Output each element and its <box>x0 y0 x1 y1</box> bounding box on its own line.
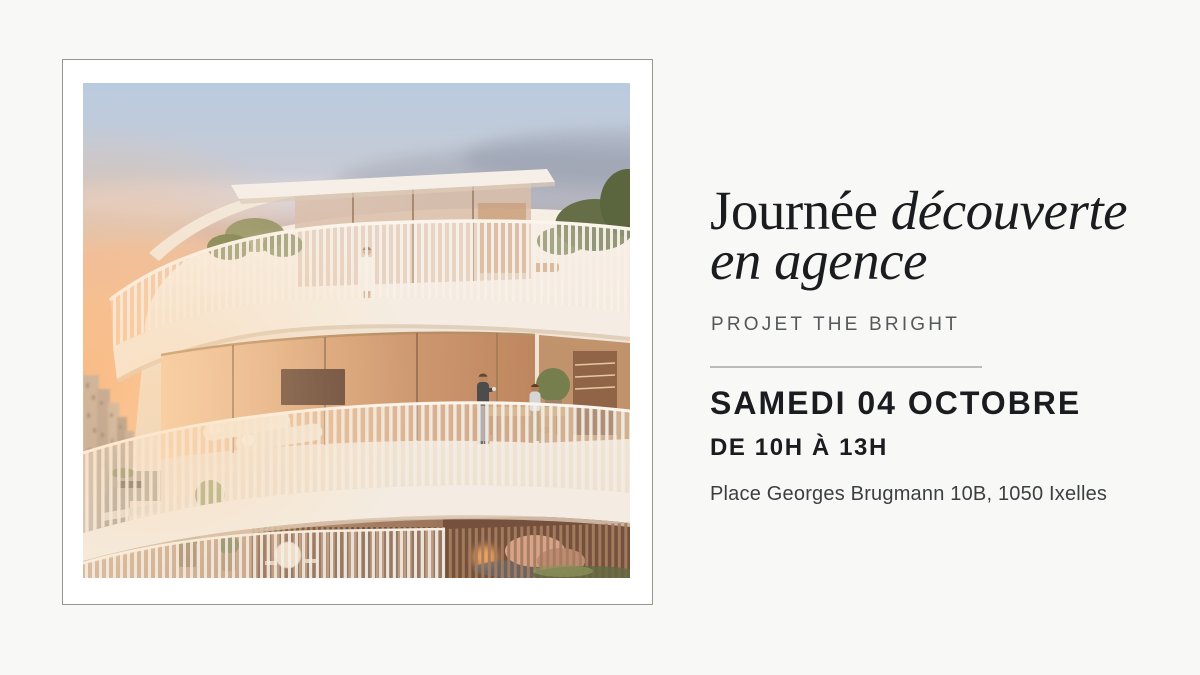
project-label: PROJET THE BRIGHT <box>711 314 960 336</box>
sunlight-overlay <box>83 83 630 578</box>
title-line-2: en agence <box>710 236 1127 286</box>
event-date: SAMEDI 04 OCTOBRE <box>710 385 1081 422</box>
title-word-italic: découverte <box>891 180 1127 241</box>
divider-line <box>710 366 982 368</box>
event-time: DE 10H À 13H <box>710 434 888 462</box>
event-address: Place Georges Brugmann 10B, 1050 Ixelles <box>710 483 1107 506</box>
title-line2-italic: en agence <box>710 230 927 291</box>
title-word-roman: Journée <box>710 180 878 241</box>
building-rendering-image <box>83 83 630 578</box>
page-title: Journée découverte en agence <box>710 186 1127 286</box>
project-photo <box>83 83 630 578</box>
flyer-canvas: Journée découverte en agence PROJET THE … <box>0 0 1200 675</box>
title-line-1: Journée découverte <box>710 186 1127 236</box>
